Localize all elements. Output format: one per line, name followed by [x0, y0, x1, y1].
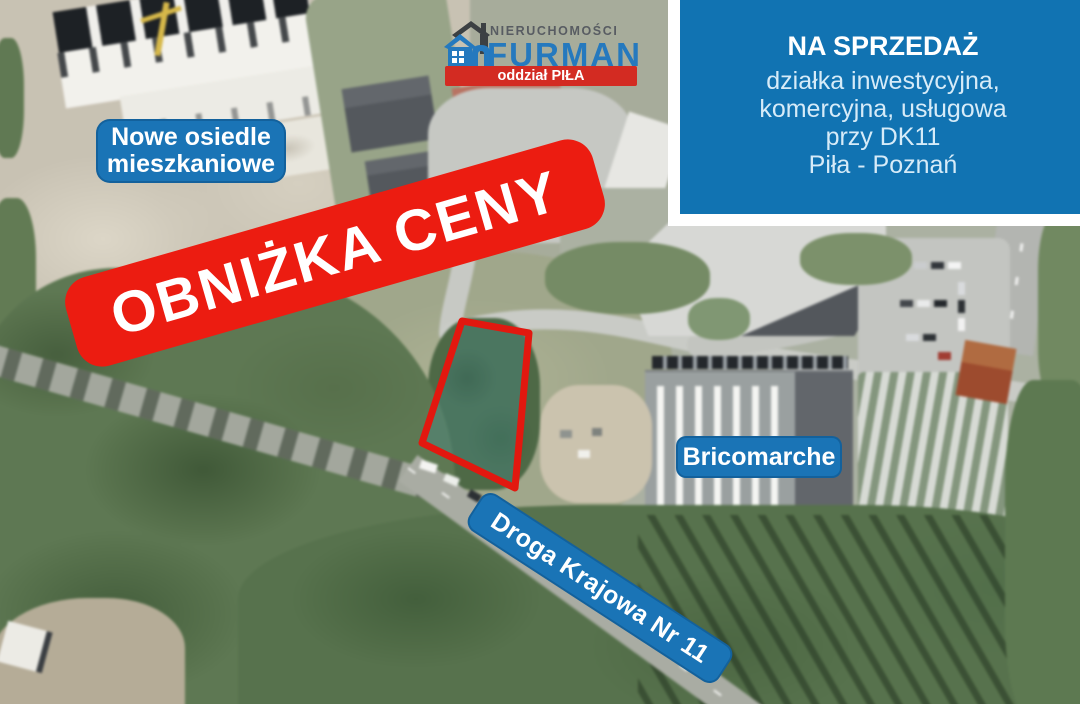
- rust-structure: [956, 340, 1017, 404]
- machinery-1: [560, 430, 572, 438]
- label-new-estate: Nowe osiedle mieszkaniowe: [96, 119, 286, 183]
- tree-cluster-2: [800, 233, 912, 285]
- offer-line-2: komercyjna, usługowa: [680, 95, 1080, 123]
- tree-cluster-3: [688, 298, 750, 340]
- label-new-estate-line2: mieszkaniowe: [107, 151, 275, 178]
- agency-logo: NIERUCHOMOŚCI FURMAN oddział PIŁA: [430, 16, 645, 90]
- offer-box-frame: NA SPRZEDAŻ działka inwestycyjna, komerc…: [668, 0, 1080, 226]
- label-bricomarche: Bricomarche: [676, 436, 842, 478]
- listing-image: Nowe osiedle mieszkaniowe Bricomarche Dr…: [0, 0, 1080, 704]
- offer-line-4: Piła - Poznań: [680, 151, 1080, 179]
- logo-branch-bar: oddział PIŁA: [445, 66, 637, 86]
- bricomarche-cars-row: [652, 356, 848, 369]
- offer-line-3: przy DK11: [680, 123, 1080, 151]
- machinery-3: [592, 428, 602, 436]
- sand-patch: [540, 385, 652, 503]
- machinery-2: [578, 450, 590, 458]
- forest-right: [1005, 380, 1080, 704]
- offer-line-1: działka inwestycyjna,: [680, 67, 1080, 95]
- house-icon: [444, 18, 492, 68]
- offer-box: NA SPRZEDAŻ działka inwestycyjna, komerc…: [680, 0, 1080, 214]
- label-bricomarche-text: Bricomarche: [683, 443, 836, 472]
- label-new-estate-line1: Nowe osiedle: [111, 124, 271, 151]
- offer-title: NA SPRZEDAŻ: [680, 30, 1080, 62]
- tree-cluster-1: [545, 242, 710, 314]
- trees-right-top: [1038, 212, 1080, 407]
